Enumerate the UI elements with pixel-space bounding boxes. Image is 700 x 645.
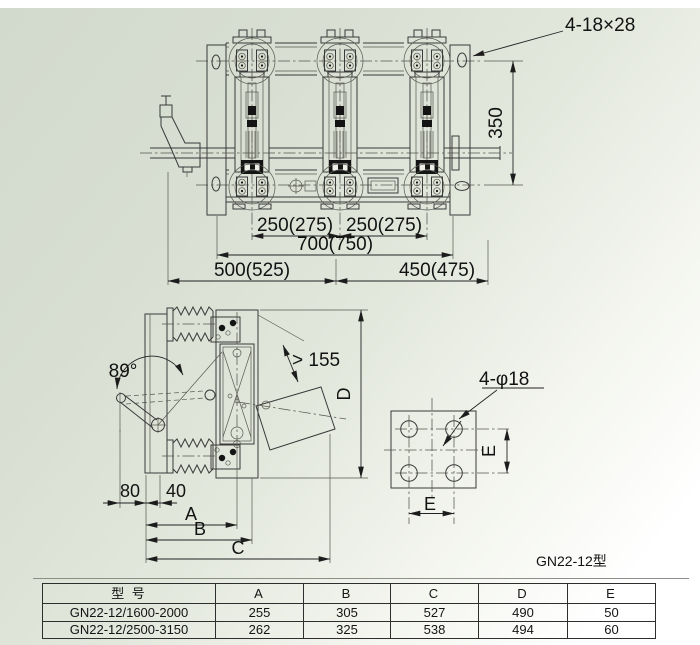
dim-e-right: E	[479, 429, 507, 473]
clearance-annotation: > 155	[258, 315, 340, 382]
drive-lever	[160, 96, 200, 177]
dim-e-right-label: E	[479, 445, 499, 457]
pole-assembly-1	[229, 28, 275, 240]
left-mounting-plate	[207, 45, 226, 215]
dim-80-label: 80	[120, 481, 140, 501]
cell-d: 494	[479, 622, 568, 639]
lower-insulator	[162, 439, 218, 473]
cell-c: 538	[391, 622, 479, 639]
pole-assembly-2	[317, 28, 363, 240]
cell-c: 527	[391, 604, 479, 622]
dim-overall-label: 700(750)	[297, 234, 373, 255]
contact-flanges	[211, 317, 240, 469]
cell-e: 50	[568, 604, 656, 622]
drawing-caption: GN22-12型	[536, 553, 607, 569]
dim-e-bottom-label: E	[424, 494, 436, 514]
operating-shaft	[140, 136, 512, 170]
col-header-e: E	[568, 584, 656, 604]
holes-note-label: 4-φ18	[479, 369, 529, 390]
col-header-model: 型 号	[43, 584, 216, 604]
cell-a: 262	[216, 622, 304, 639]
dim-right-span-label: 450(475)	[399, 260, 475, 281]
cell-model: GN22-12/1600-2000	[43, 604, 216, 622]
upper-insulator	[162, 307, 218, 341]
slot-note-label: 4-18×28	[565, 15, 635, 36]
table-header-row: 型 号 A B C D E	[43, 584, 656, 604]
table-row: GN22-12/2500-3150 262 325 538 494 60	[43, 622, 656, 639]
side-view: 89° > 155 D 80 40 A B	[103, 307, 368, 563]
cell-e: 60	[568, 622, 656, 639]
angle-annotation: 89°	[109, 356, 183, 389]
dimension-table: 型 号 A B C D E GN22-12/1600-2000 255 305 …	[42, 583, 656, 639]
dim-pitch-left-label: 250(275)	[257, 215, 333, 236]
dim-350-label: 350	[486, 107, 507, 139]
side-panel	[145, 314, 167, 473]
holes-note: 4-φ18	[443, 369, 544, 446]
cell-b: 325	[304, 622, 391, 639]
right-mounting-plate	[450, 45, 470, 215]
dim-left-span-label: 500(525)	[214, 260, 290, 281]
angle-label: 89°	[109, 361, 138, 382]
pole-assembly-3	[404, 28, 450, 240]
top-view-dimensions: 4-18×28 350 250(275) 250(275) 700(750) 5…	[168, 15, 635, 285]
table-row: GN22-12/1600-2000 255 305 527 490 50	[43, 604, 656, 622]
table-top-rule	[33, 578, 689, 579]
technical-drawing: 4-18×28 350 250(275) 250(275) 700(750) 5…	[0, 0, 700, 578]
cell-b: 305	[304, 604, 391, 622]
col-header-c: C	[391, 584, 479, 604]
dim-pitch-right-label: 250(275)	[346, 215, 422, 236]
col-header-b: B	[304, 584, 391, 604]
cell-a: 255	[216, 604, 304, 622]
plate-holes	[401, 421, 463, 482]
mounting-plate-view: 4-φ18 E E	[384, 369, 544, 524]
col-header-a: A	[216, 584, 304, 604]
dim-b-label: B	[194, 519, 206, 539]
clearance-label: > 155	[292, 350, 340, 371]
dim-d: D	[260, 310, 368, 478]
cell-d: 490	[479, 604, 568, 622]
base-fittings	[288, 178, 398, 194]
cell-model: GN22-12/2500-3150	[43, 622, 216, 639]
top-view: 4-18×28 350 250(275) 250(275) 700(750) 5…	[140, 15, 635, 285]
col-header-d: D	[479, 584, 568, 604]
dim-e-bottom: E	[409, 494, 454, 514]
dim-d-label: D	[334, 388, 354, 401]
dim-40-label: 40	[166, 481, 186, 501]
dim-c-label: C	[232, 538, 245, 558]
plate-center-lines	[384, 398, 509, 524]
